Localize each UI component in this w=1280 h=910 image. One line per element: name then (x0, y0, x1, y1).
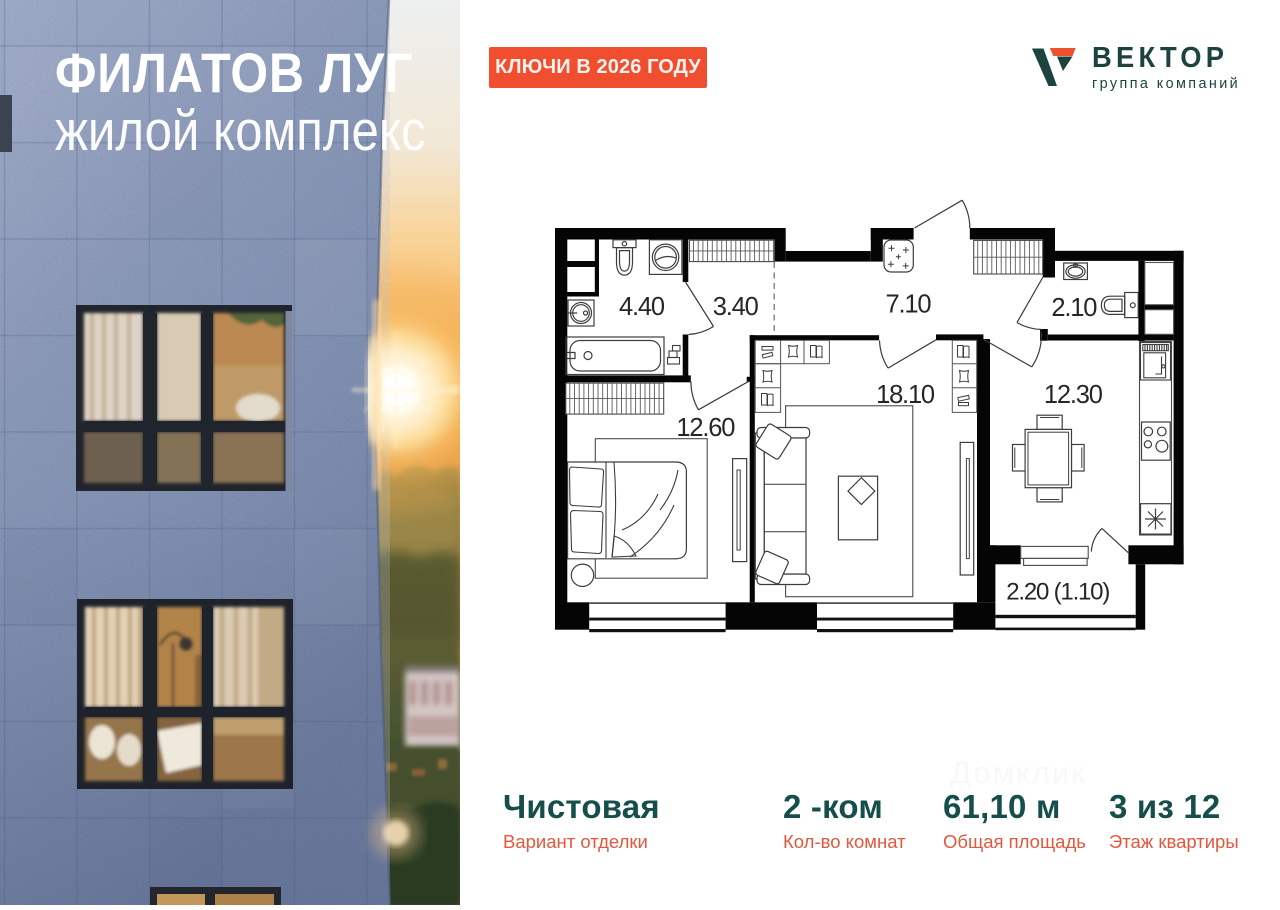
svg-text:2.10: 2.10 (1051, 294, 1097, 322)
svg-text:3.40: 3.40 (713, 293, 759, 321)
svg-text:12.30: 12.30 (1044, 381, 1103, 409)
svg-text:7.10: 7.10 (885, 290, 931, 318)
svg-text:2.20 (1.10): 2.20 (1.10) (1006, 579, 1109, 606)
svg-text:12.60: 12.60 (676, 414, 735, 442)
svg-text:4.40: 4.40 (619, 293, 665, 321)
svg-text:18.10: 18.10 (876, 381, 935, 409)
